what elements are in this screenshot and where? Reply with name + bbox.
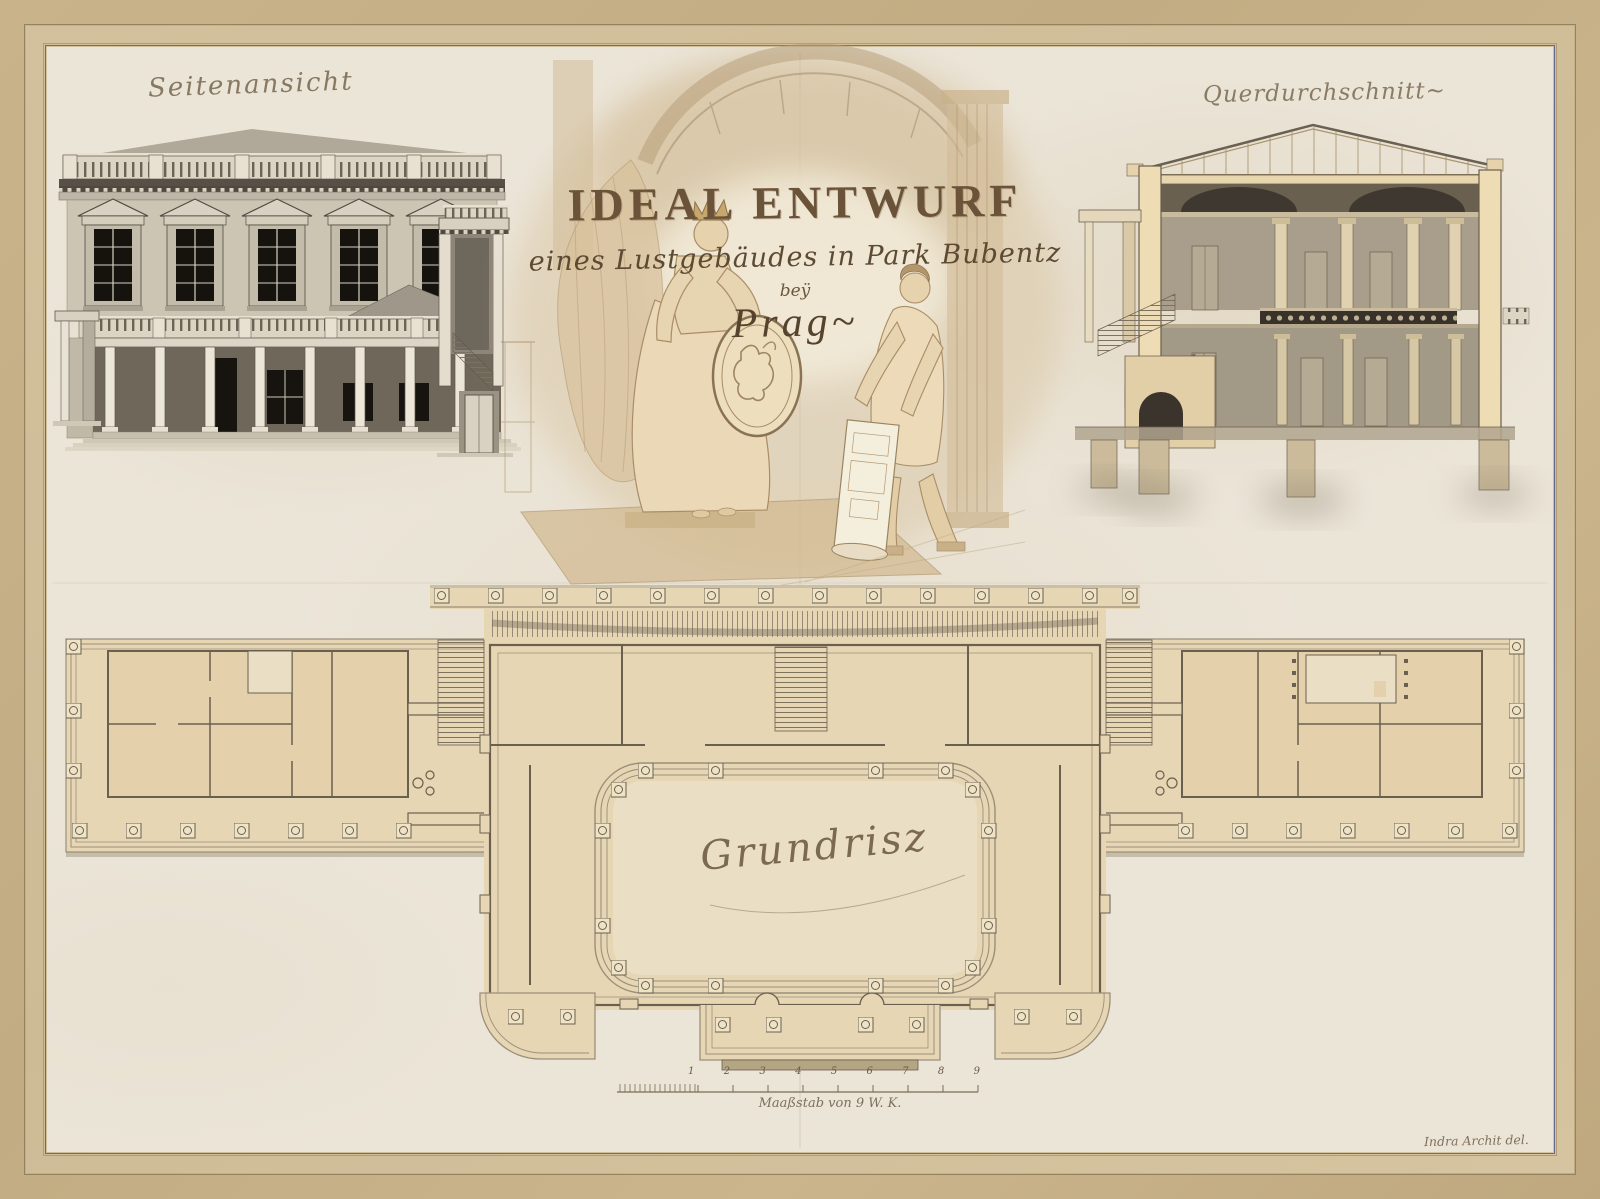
label-cross-section: Querdurchschnitt~ [1203,78,1446,108]
scale-number: 6 [867,1066,873,1077]
scale-bar-caption: Maaßstab von 9 W. K. [700,1096,960,1111]
section-cut-wall-right [1479,170,1501,440]
title-block: IDEAL ENTWURF eines Lustgebäudes in Park… [495,176,1095,347]
drawing-sheet: Seitenansicht Querdurchschnitt~ IDEAL EN… [0,0,1600,1199]
scale-number: 1 [688,1066,694,1077]
scale-bar [617,1084,978,1092]
artist-signature: Indra Archit del. [1424,1132,1529,1149]
elevation-drawing [53,129,521,457]
plan-stair-central [775,647,827,731]
elevation-cornice [59,179,505,200]
section-ceiling-band [1140,175,1490,184]
section-foundations [1075,427,1533,514]
scale-number: 8 [938,1066,944,1077]
plan-right-wing [1100,639,1524,857]
scale-number: 3 [759,1066,765,1077]
plan-stair-right [1106,640,1152,745]
scale-number: 7 [902,1066,908,1077]
section-balcony [1161,308,1529,328]
plan-left-wing [66,639,490,857]
scale-bar-numbers: 1 2 3 4 5 6 7 8 9 [688,1066,980,1077]
section-roof-truss [1127,125,1503,176]
scale-number: 9 [974,1066,980,1077]
scale-major-ticks [698,1085,978,1092]
pediment-window [78,199,148,311]
section-upper-hall [1161,184,1479,310]
scale-number: 2 [724,1066,730,1077]
title-line-2: eines Lustgebäudes in Park Bubentz [495,237,1095,278]
scale-number: 5 [831,1066,837,1077]
plan-courtyard [595,763,996,993]
plan-corner-porch-left [480,993,595,1059]
plan-corner-porch-right [995,993,1110,1059]
plan-stair-left [438,640,484,745]
title-line-1: IDEAL ENTWURF [495,173,1096,232]
scale-subdivisions [620,1084,695,1092]
scale-number: 4 [795,1066,801,1077]
elevation-ground-floor [65,338,521,451]
footstool [625,512,755,528]
title-line-4: Prag~ [495,294,1096,352]
elevation-parapet [63,153,501,179]
section-drawing [1075,125,1533,514]
